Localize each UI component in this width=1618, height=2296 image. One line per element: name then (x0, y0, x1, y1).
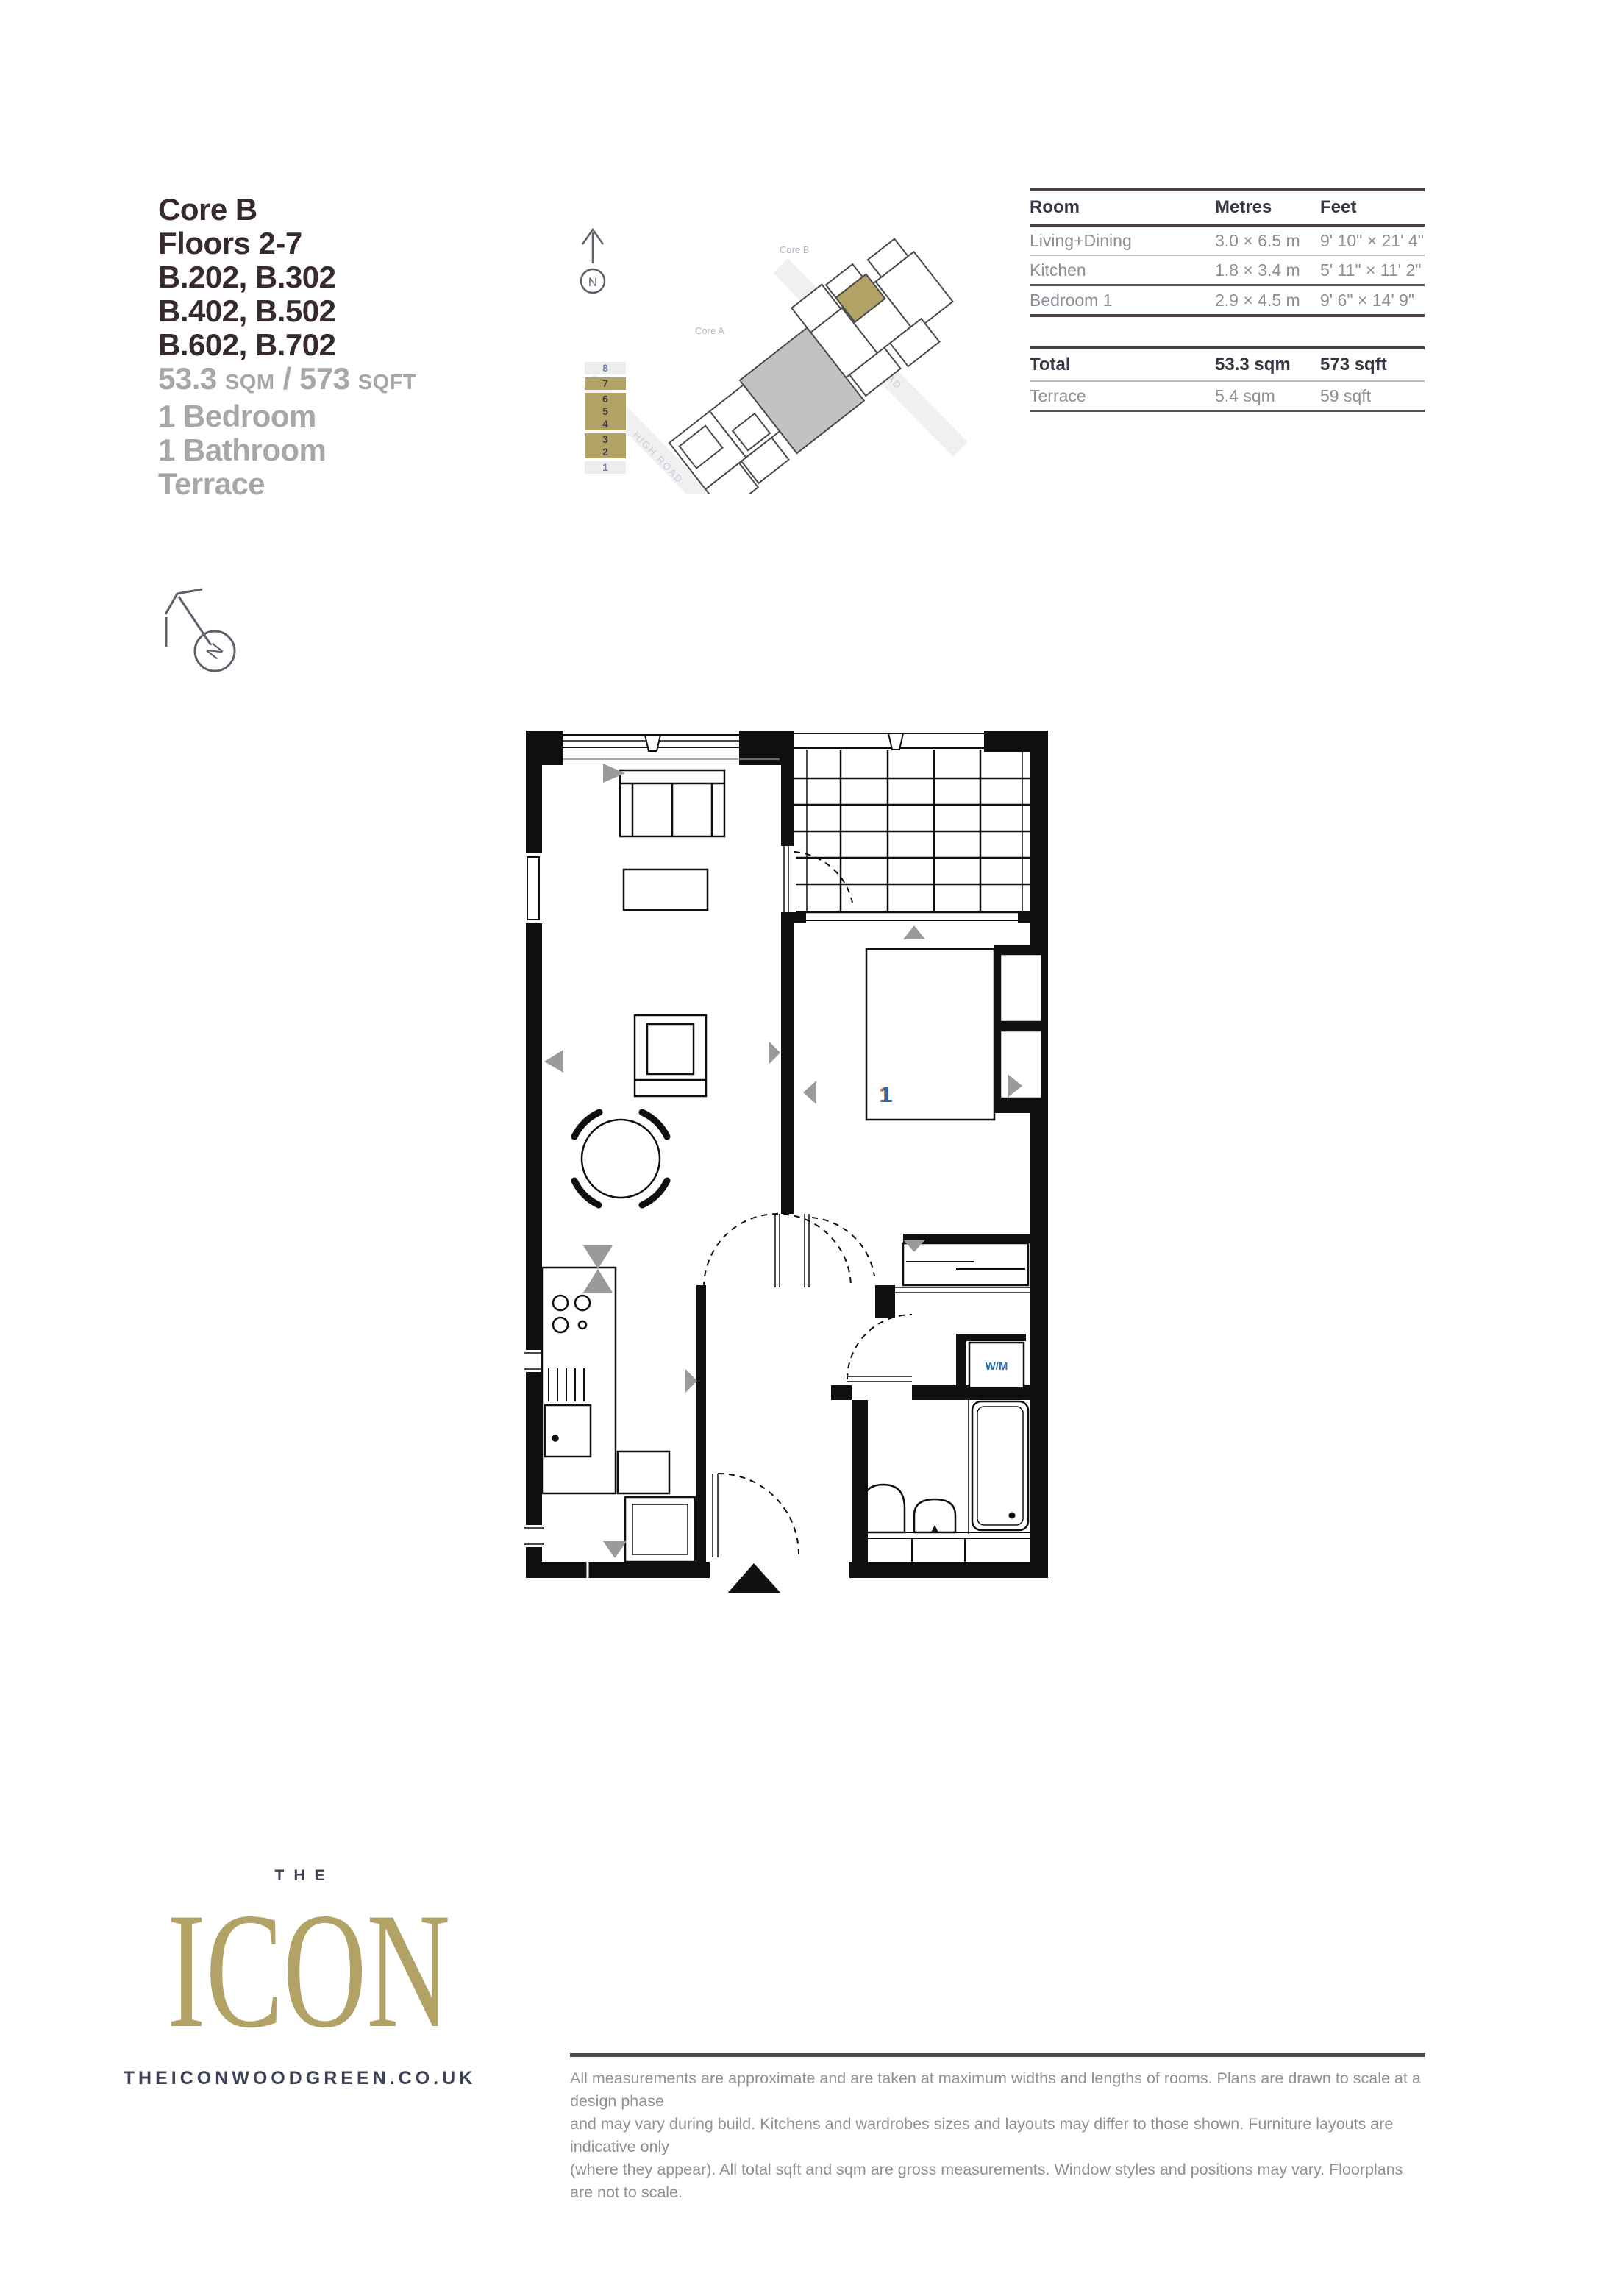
dining-table (582, 1120, 660, 1198)
living-door-arc (704, 1214, 851, 1287)
cell-feet: 9' 6" × 14' 9" (1320, 291, 1425, 310)
cell-room: Kitchen (1030, 260, 1215, 280)
brochure-page: Core B Floors 2-7 B.202, B.302 B.402, B.… (0, 0, 1618, 2296)
area-line: 53.3 SQM / 573 SQFT (158, 362, 416, 399)
table-row-total: Total 53.3 sqm 573 sqft (1030, 349, 1425, 380)
table-row-living: Living+Dining 3.0 × 6.5 m 9' 10" × 21' 4… (1030, 227, 1425, 255)
cell-metres: 2.9 × 4.5 m (1215, 291, 1320, 310)
left-window (527, 857, 539, 920)
floor-4: 4 (602, 418, 608, 430)
floor-7: 7 (602, 377, 608, 389)
living-furniture (582, 770, 724, 1198)
table-row-bedroom: Bedroom 1 2.9 × 4.5 m 9' 6" × 14' 9" (1030, 286, 1425, 314)
table-gap (1030, 317, 1425, 346)
terrace-decking (794, 750, 1030, 911)
disclaimer: All measurements are approximate and are… (570, 2053, 1425, 2204)
cell-metres: 3.0 × 6.5 m (1215, 231, 1320, 251)
kitchen (542, 1268, 695, 1562)
site-plan: HIGH ROAD BURY ROAD (559, 215, 989, 494)
cell-metres: 5.4 sqm (1215, 386, 1320, 406)
title-block: Core B Floors 2-7 B.202, B.302 B.402, B.… (158, 193, 416, 501)
table-rule-bottom (1030, 410, 1425, 412)
units-line-1: B.202, B.302 (158, 260, 416, 294)
units-line-2: B.402, B.502 (158, 294, 416, 328)
coffee-table (624, 870, 708, 910)
bathtub (972, 1401, 1028, 1530)
kitchen-unit (618, 1451, 669, 1493)
entrance-arrow-icon (727, 1563, 782, 1593)
cell-feet: 9' 10" × 21' 4" (1320, 231, 1425, 251)
core-title: Core B (158, 193, 416, 227)
feature-bedroom: 1 Bedroom (158, 399, 416, 433)
floor-stack: 8 7 6 5 4 3 2 1 (585, 362, 626, 474)
terrace-door-arc (794, 852, 852, 903)
site-core-a-label: Core A (695, 325, 724, 336)
floor-8: 8 (602, 362, 608, 374)
cell-metres: 1.8 × 3.4 m (1215, 260, 1320, 280)
cell-room: Bedroom 1 (1030, 291, 1215, 310)
compass: N (136, 563, 254, 688)
units-line-3: B.602, B.702 (158, 328, 416, 362)
kitchen-unit (625, 1497, 695, 1562)
cell-room: Living+Dining (1030, 231, 1215, 251)
cell-feet: 5' 11" × 11' 2" (1320, 260, 1425, 280)
floors-line: Floors 2-7 (158, 227, 416, 260)
bedroom-number-label: 1 (880, 1083, 893, 1107)
floor-5: 5 (602, 405, 608, 417)
table-header-row: Room Metres Feet (1030, 191, 1425, 224)
disclaimer-rule (570, 2053, 1425, 2057)
disclaimer-line-3: (where they appear). All total sqft and … (570, 2158, 1425, 2204)
dimensions-table: Room Metres Feet Living+Dining 3.0 × 6.5… (1030, 188, 1425, 412)
wardrobe (903, 1243, 1028, 1285)
basin (862, 1485, 905, 1532)
bedside-unit (1000, 954, 1042, 1022)
floor-1: 1 (602, 461, 608, 473)
col-metres: Metres (1215, 197, 1320, 218)
feature-terrace: Terrace (158, 467, 416, 501)
disclaimer-line-1: All measurements are approximate and are… (570, 2067, 1425, 2113)
utility: W/M (969, 1343, 1024, 1388)
washing-machine-label: W/M (986, 1360, 1008, 1373)
col-feet: Feet (1320, 197, 1425, 218)
cell-feet: 59 sqft (1320, 386, 1425, 406)
bedroom-door-arc (812, 1218, 874, 1276)
col-room: Room (1030, 197, 1215, 218)
disclaimer-line-2: and may vary during build. Kitchens and … (570, 2113, 1425, 2158)
cell-room: Terrace (1030, 386, 1215, 406)
website-url: THEICONWOODGREEN.CO.UK (110, 2068, 489, 2089)
logo-icon-wordmark: ICON (167, 1895, 432, 2046)
site-building (650, 227, 969, 494)
cell-room: Total (1030, 355, 1215, 375)
cell-metres: 53.3 sqm (1215, 355, 1320, 375)
compass-north-label: N (202, 639, 227, 663)
bathroom (857, 1400, 1030, 1562)
table-row-terrace: Terrace 5.4 sqm 59 sqft (1030, 382, 1425, 410)
entrance-door-arc (718, 1474, 799, 1554)
cell-feet: 573 sqft (1320, 355, 1425, 375)
floor-3: 3 (602, 433, 608, 445)
logo-block: THE ICON THEICONWOODGREEN.CO.UK (110, 1867, 489, 2089)
floor-6: 6 (602, 393, 608, 405)
table-row-kitchen: Kitchen 1.8 × 3.4 m 5' 11" × 11' 2" (1030, 256, 1425, 284)
feature-bathroom: 1 Bathroom (158, 433, 416, 467)
bathroom-door-arc (847, 1315, 912, 1379)
floor-2: 2 (602, 446, 608, 458)
bedside-unit (1000, 1031, 1042, 1098)
north-arrow-icon (165, 589, 235, 671)
site-core-b-label: Core B (780, 244, 809, 255)
floor-plan: 1 W/M (515, 703, 1052, 1593)
site-north-label: N (588, 275, 597, 289)
